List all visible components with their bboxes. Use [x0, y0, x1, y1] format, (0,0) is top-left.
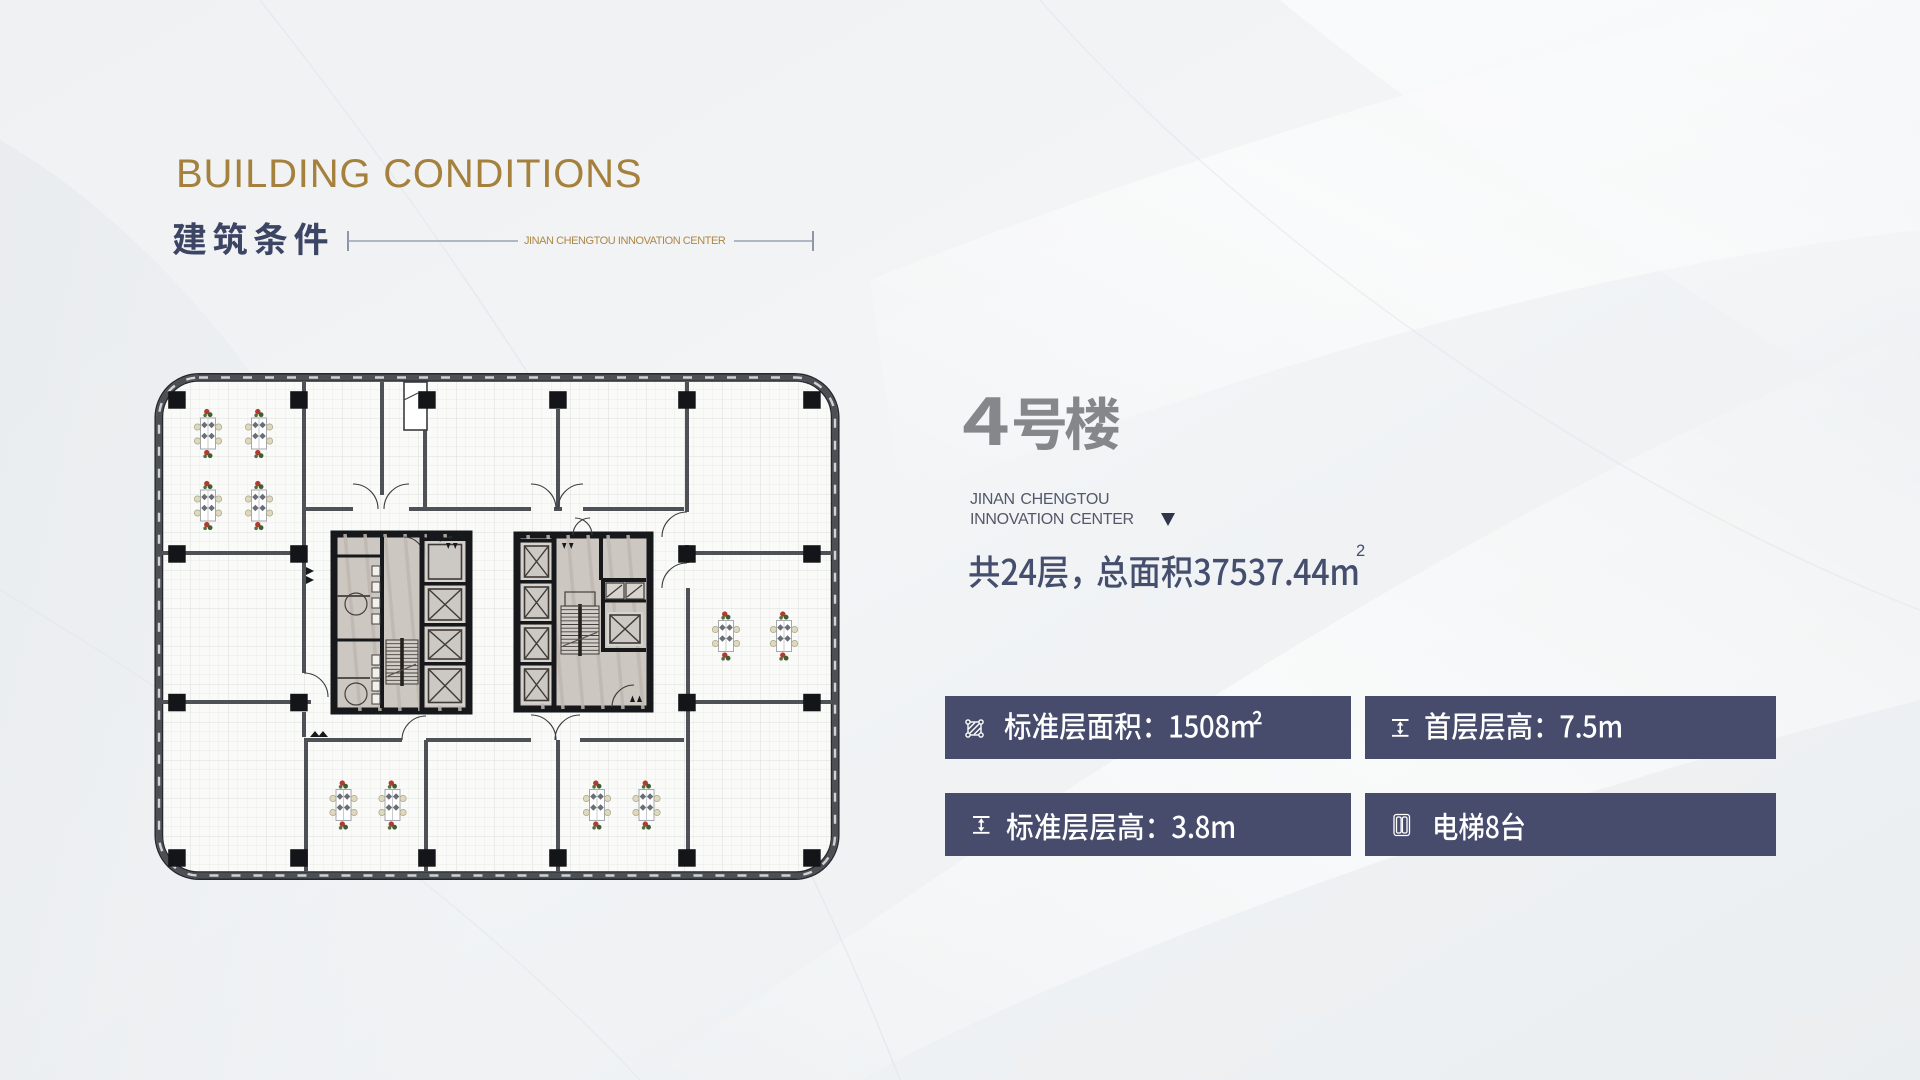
svg-text:2: 2	[1356, 542, 1365, 560]
